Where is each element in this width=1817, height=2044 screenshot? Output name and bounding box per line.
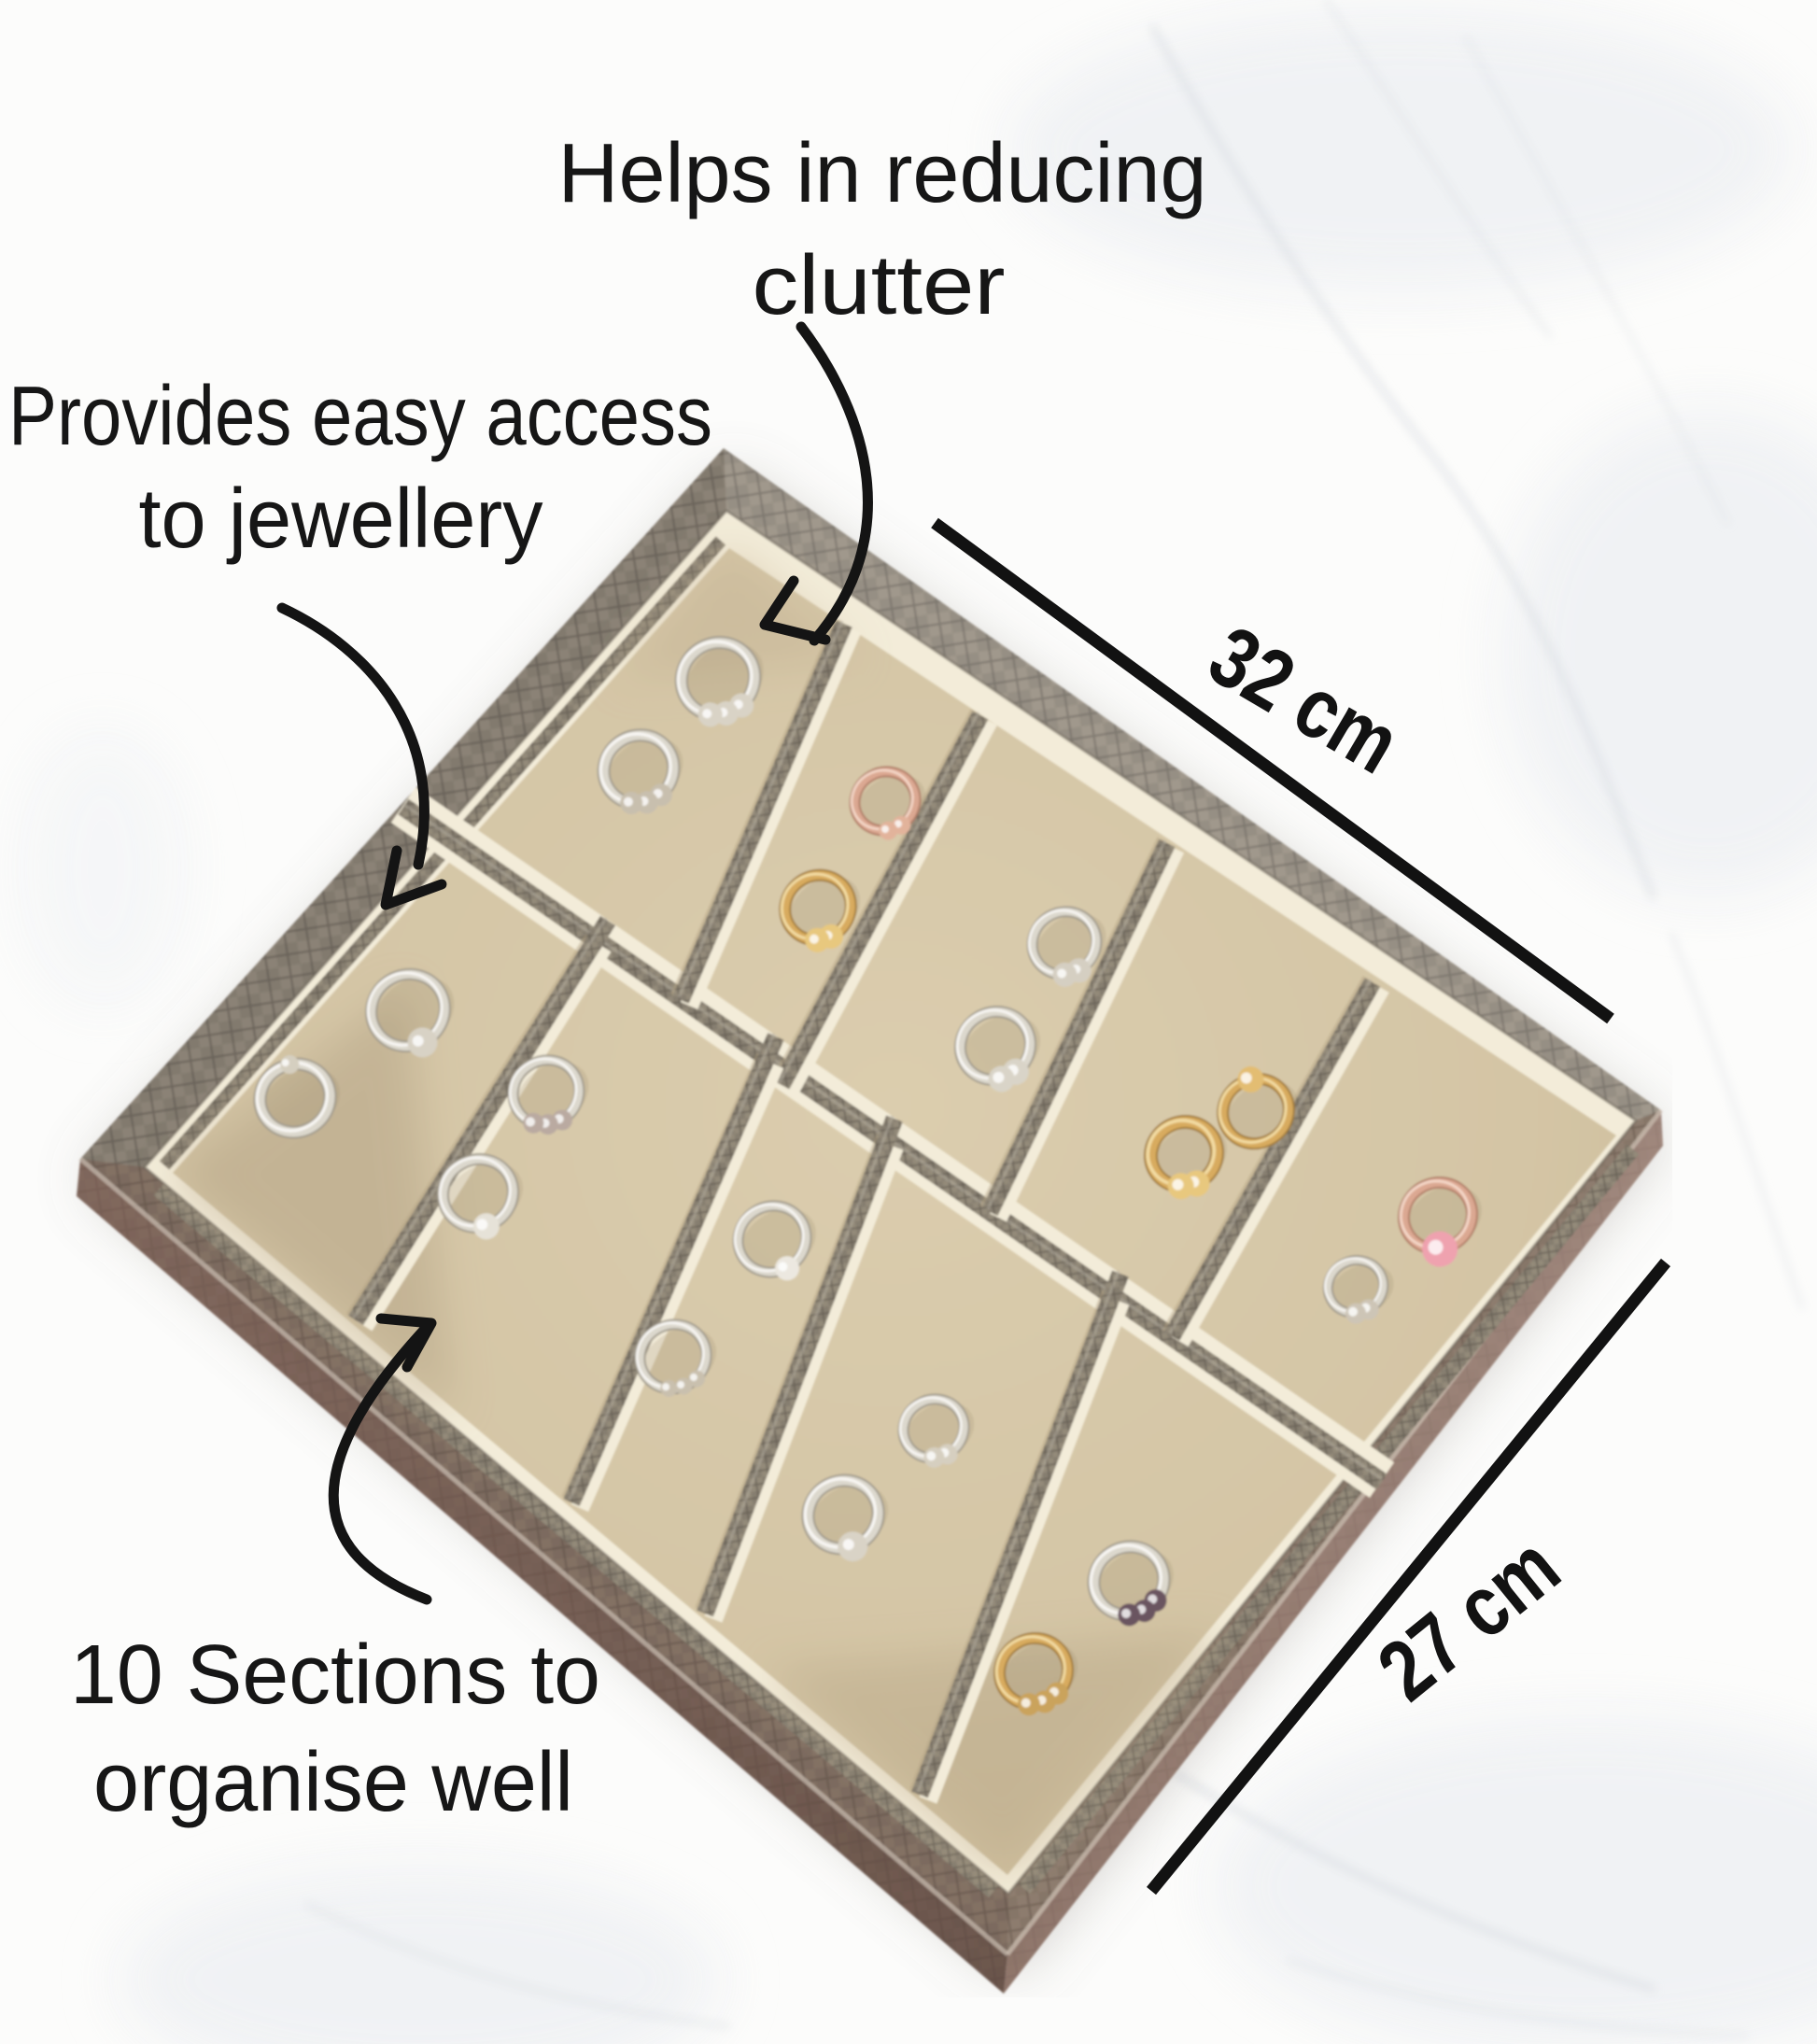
svg-text:to jewellery: to jewellery (139, 472, 543, 566)
svg-text:Helps in reducing: Helps in reducing (558, 127, 1207, 220)
svg-text:clutter: clutter (753, 239, 1006, 332)
svg-text:10 Sections to: 10 Sections to (70, 1628, 600, 1722)
svg-text:organise well: organise well (93, 1736, 573, 1829)
svg-text:Provides easy access: Provides easy access (8, 370, 712, 463)
